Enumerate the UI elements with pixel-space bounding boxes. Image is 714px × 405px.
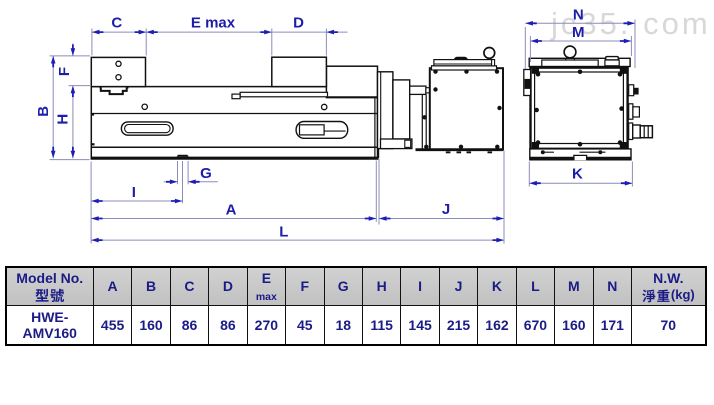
svg-text:N: N	[573, 6, 584, 23]
svg-text:A: A	[226, 201, 237, 218]
svg-text:L: L	[279, 223, 288, 240]
svg-text:E max: E max	[191, 14, 236, 31]
svg-text:K: K	[572, 166, 583, 183]
svg-text:M: M	[572, 24, 585, 41]
svg-text:C: C	[111, 14, 122, 31]
svg-text:F: F	[56, 67, 73, 76]
svg-text:B: B	[35, 106, 52, 117]
svg-text:J: J	[442, 201, 450, 218]
svg-text:D: D	[293, 14, 304, 31]
svg-text:G: G	[200, 165, 212, 182]
svg-text:I: I	[132, 184, 136, 201]
svg-text:H: H	[55, 114, 72, 125]
